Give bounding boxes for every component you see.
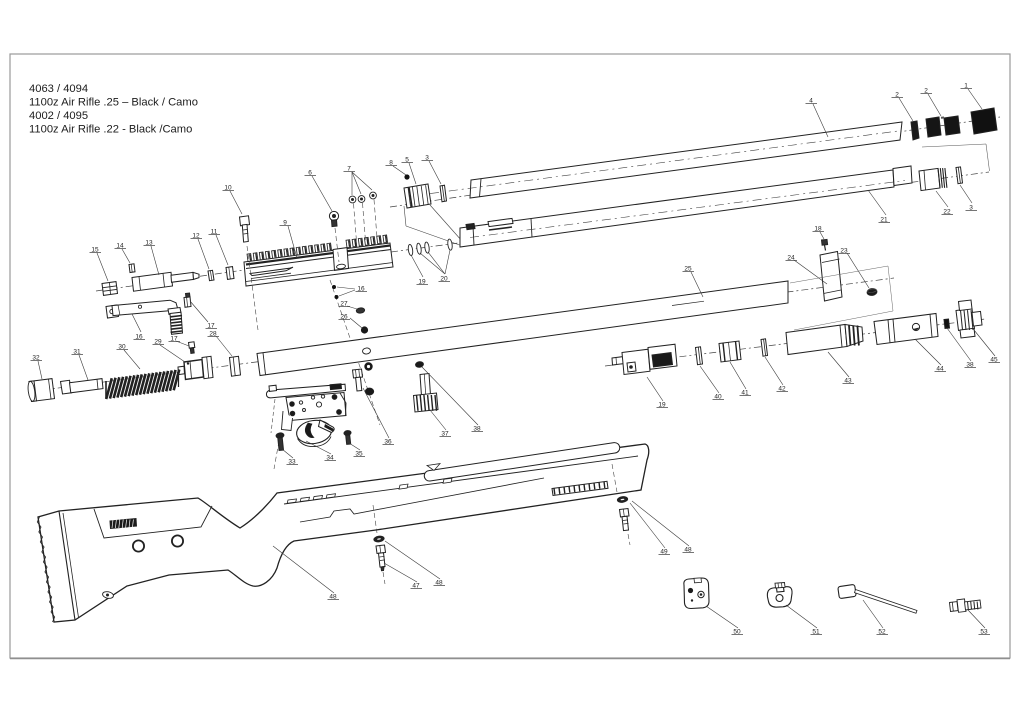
svg-text:1100z Air Rifle .22 - Black /C: 1100z Air Rifle .22 - Black /Camo	[29, 124, 192, 136]
svg-text:48: 48	[684, 547, 692, 554]
svg-text:17: 17	[170, 336, 178, 343]
svg-text:4002 / 4095: 4002 / 4095	[29, 110, 88, 122]
svg-text:24: 24	[787, 255, 795, 262]
svg-text:45: 45	[990, 357, 998, 364]
svg-text:47: 47	[412, 583, 420, 590]
svg-text:32: 32	[32, 355, 40, 362]
svg-text:27: 27	[340, 301, 348, 308]
svg-text:52: 52	[878, 629, 886, 636]
svg-text:14: 14	[116, 243, 124, 250]
svg-text:16: 16	[357, 286, 365, 293]
svg-text:42: 42	[778, 386, 786, 393]
svg-text:30: 30	[118, 344, 126, 351]
svg-text:31: 31	[73, 349, 81, 356]
svg-text:40: 40	[714, 394, 722, 401]
svg-text:49: 49	[660, 549, 668, 556]
svg-text:50: 50	[733, 629, 741, 636]
svg-text:19: 19	[658, 402, 666, 409]
svg-text:3: 3	[425, 155, 429, 162]
svg-text:38: 38	[966, 362, 974, 369]
svg-text:13: 13	[145, 240, 153, 247]
svg-text:4: 4	[809, 98, 813, 105]
svg-text:26: 26	[340, 314, 348, 321]
svg-text:6: 6	[308, 170, 312, 177]
svg-text:19: 19	[418, 279, 426, 286]
svg-text:12: 12	[192, 233, 200, 240]
svg-text:1100z Air Rifle .25 – Black /: 1100z Air Rifle .25 – Black / Camo	[29, 97, 198, 109]
svg-text:48: 48	[329, 594, 337, 601]
svg-text:25: 25	[684, 266, 692, 273]
svg-text:23: 23	[840, 248, 848, 255]
svg-text:43: 43	[844, 378, 852, 385]
svg-text:9: 9	[283, 220, 287, 227]
svg-text:29: 29	[154, 339, 162, 346]
svg-text:17: 17	[207, 323, 215, 330]
svg-text:51: 51	[812, 629, 820, 636]
svg-text:18: 18	[814, 226, 822, 233]
svg-text:22: 22	[943, 209, 951, 216]
svg-text:41: 41	[741, 390, 749, 397]
svg-text:3: 3	[969, 205, 973, 212]
svg-text:8: 8	[389, 160, 393, 167]
svg-text:37: 37	[441, 431, 449, 438]
svg-text:36: 36	[384, 439, 392, 446]
svg-text:2: 2	[924, 88, 928, 95]
svg-text:35: 35	[355, 451, 363, 458]
svg-text:53: 53	[980, 629, 988, 636]
svg-text:21: 21	[880, 217, 888, 224]
svg-text:28: 28	[209, 331, 217, 338]
svg-text:4063 / 4094: 4063 / 4094	[29, 83, 88, 95]
svg-text:20: 20	[440, 276, 448, 283]
svg-text:15: 15	[91, 247, 99, 254]
svg-text:16: 16	[135, 334, 143, 341]
svg-text:10: 10	[224, 185, 232, 192]
svg-text:33: 33	[288, 459, 296, 466]
svg-text:7: 7	[347, 166, 351, 173]
svg-text:38: 38	[473, 426, 481, 433]
svg-text:44: 44	[936, 366, 944, 373]
svg-text:34: 34	[326, 455, 334, 462]
svg-text:5: 5	[405, 157, 409, 164]
svg-text:11: 11	[211, 229, 218, 236]
svg-text:1: 1	[964, 83, 968, 90]
svg-text:2: 2	[895, 92, 899, 99]
svg-text:48: 48	[435, 580, 443, 587]
